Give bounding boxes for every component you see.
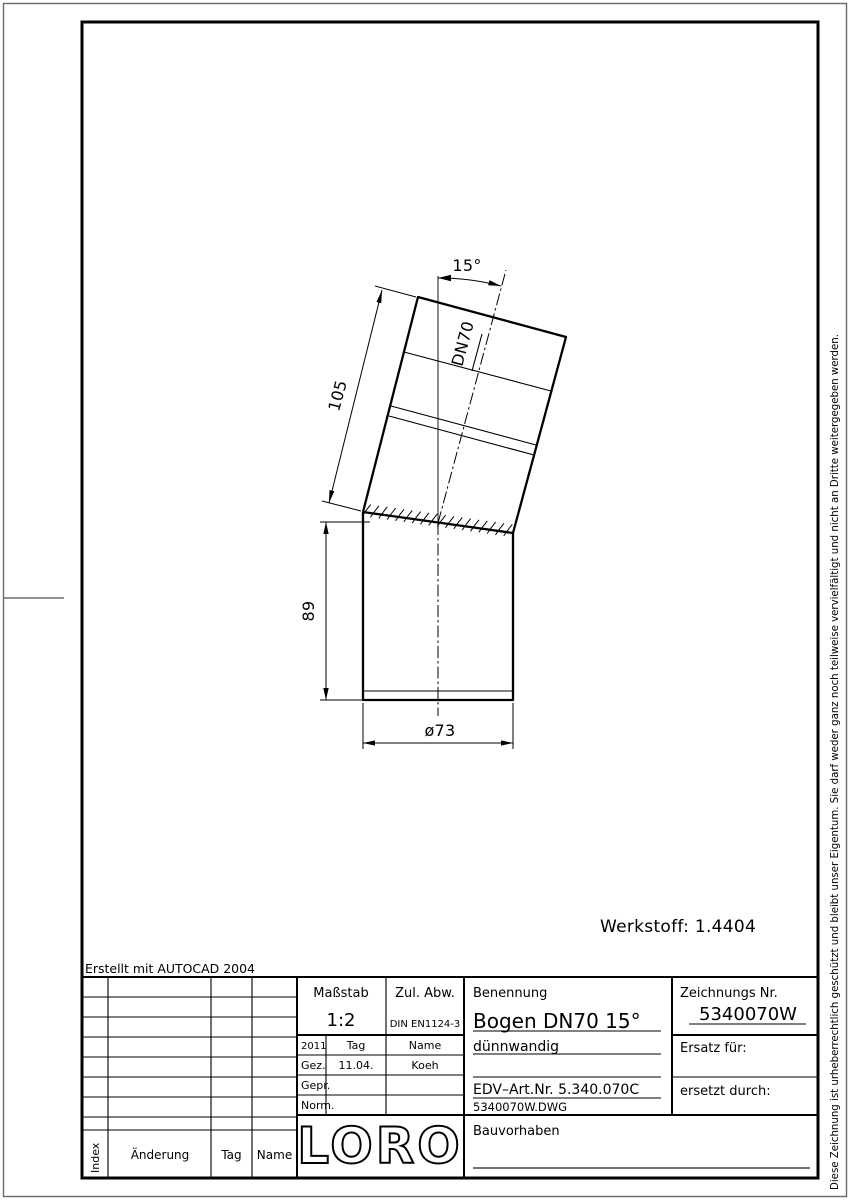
dim73-arrow-right	[501, 740, 513, 745]
dim105-label: 105	[324, 378, 350, 413]
rev-tag-col-header: Tag	[220, 1148, 241, 1162]
weld-hatch-marks	[362, 505, 512, 536]
pipe-bend-view: 15° DN70 105 89 ø73	[299, 256, 566, 749]
werkstoff-note: Werkstoff: 1.4404	[600, 917, 756, 937]
edv-art-nr: EDV–Art.Nr. 5.340.070C	[473, 1082, 639, 1098]
dn70-label: DN70	[448, 319, 478, 368]
ersetzt-durch-label: ersetzt durch:	[680, 1084, 771, 1099]
copyright-vertical-note: Diese Zeichnung ist urheberrechtlich ges…	[828, 334, 841, 1190]
bauvorhaben-label: Bauvorhaben	[473, 1124, 560, 1139]
drawing-sheet: Diese Zeichnung ist urheberrechtlich ges…	[0, 0, 850, 1200]
upper-pipe-joint-line	[404, 352, 551, 391]
zeichnungs-nr-label: Zeichnungs Nr.	[680, 986, 778, 1001]
dim105-extension-lower	[322, 501, 361, 511]
cad-drawing-canvas: Diese Zeichnung ist urheberrechtlich ges…	[0, 0, 850, 1200]
gez-date: 11.04.	[339, 1059, 374, 1072]
year-cell: 2011	[301, 1041, 326, 1052]
index-col-header: Index	[89, 1142, 102, 1173]
gez-name: Koeh	[411, 1059, 438, 1072]
dim105-arrow-lower	[329, 490, 334, 503]
zul-abw-label: Zul. Abw.	[395, 986, 455, 1001]
tag-col-header: Tag	[346, 1039, 366, 1052]
dim73-arrow-left	[363, 740, 375, 745]
name-col-header: Name	[409, 1039, 442, 1052]
dim89-arrow-top	[323, 522, 328, 534]
upper-pipe-socket-line-2	[389, 416, 534, 455]
upper-pipe-socket-line-1	[391, 406, 536, 445]
angle-label: 15°	[452, 256, 481, 275]
zul-abw-value: DIN EN1124-3	[390, 1019, 461, 1030]
dim105-arrow-upper	[377, 290, 383, 303]
gepr-label: Gepr.	[301, 1079, 330, 1092]
aenderung-col-header: Änderung	[131, 1147, 190, 1162]
dwg-file-name: 5340070W.DWG	[473, 1100, 567, 1114]
dim89-label: 89	[299, 601, 318, 622]
rev-name-col-header: Name	[257, 1148, 292, 1162]
angle-arrow-left	[438, 275, 451, 281]
angle-arrow-right	[488, 280, 501, 286]
masstab-label: Maßstab	[313, 986, 368, 1001]
ersatz-fuer-label: Ersatz für:	[680, 1041, 747, 1056]
dim73-label: ø73	[424, 721, 455, 740]
tilted-axis-centerline	[438, 270, 506, 523]
masstab-value: 1:2	[327, 1010, 356, 1031]
desc-line1: dünnwandig	[473, 1039, 559, 1055]
benennung-label: Benennung	[473, 986, 547, 1001]
created-with-note: Erstellt mit AUTOCAD 2004	[85, 961, 255, 976]
benennung-value: Bogen DN70 15°	[473, 1009, 641, 1033]
norm-label: Norm.	[301, 1099, 335, 1112]
gez-label: Gez.	[301, 1059, 326, 1072]
loro-logo: LORO	[297, 1117, 463, 1175]
dim89-arrow-bottom	[323, 688, 328, 700]
zeichnungs-nr-value: 5340070W	[699, 1004, 797, 1025]
